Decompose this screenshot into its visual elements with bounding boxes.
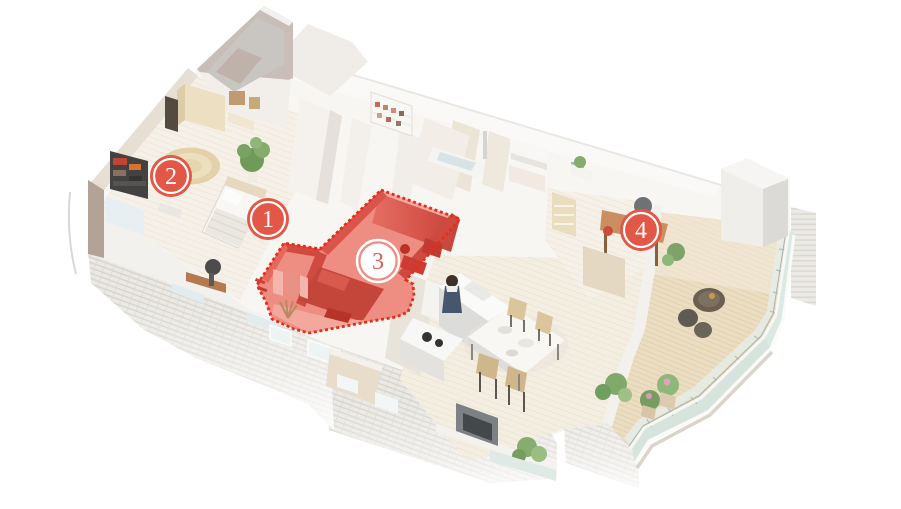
svg-text:2: 2 [165,164,177,190]
svg-text:3: 3 [372,249,384,275]
svg-text:4: 4 [635,218,647,244]
svg-text:1: 1 [262,207,274,233]
